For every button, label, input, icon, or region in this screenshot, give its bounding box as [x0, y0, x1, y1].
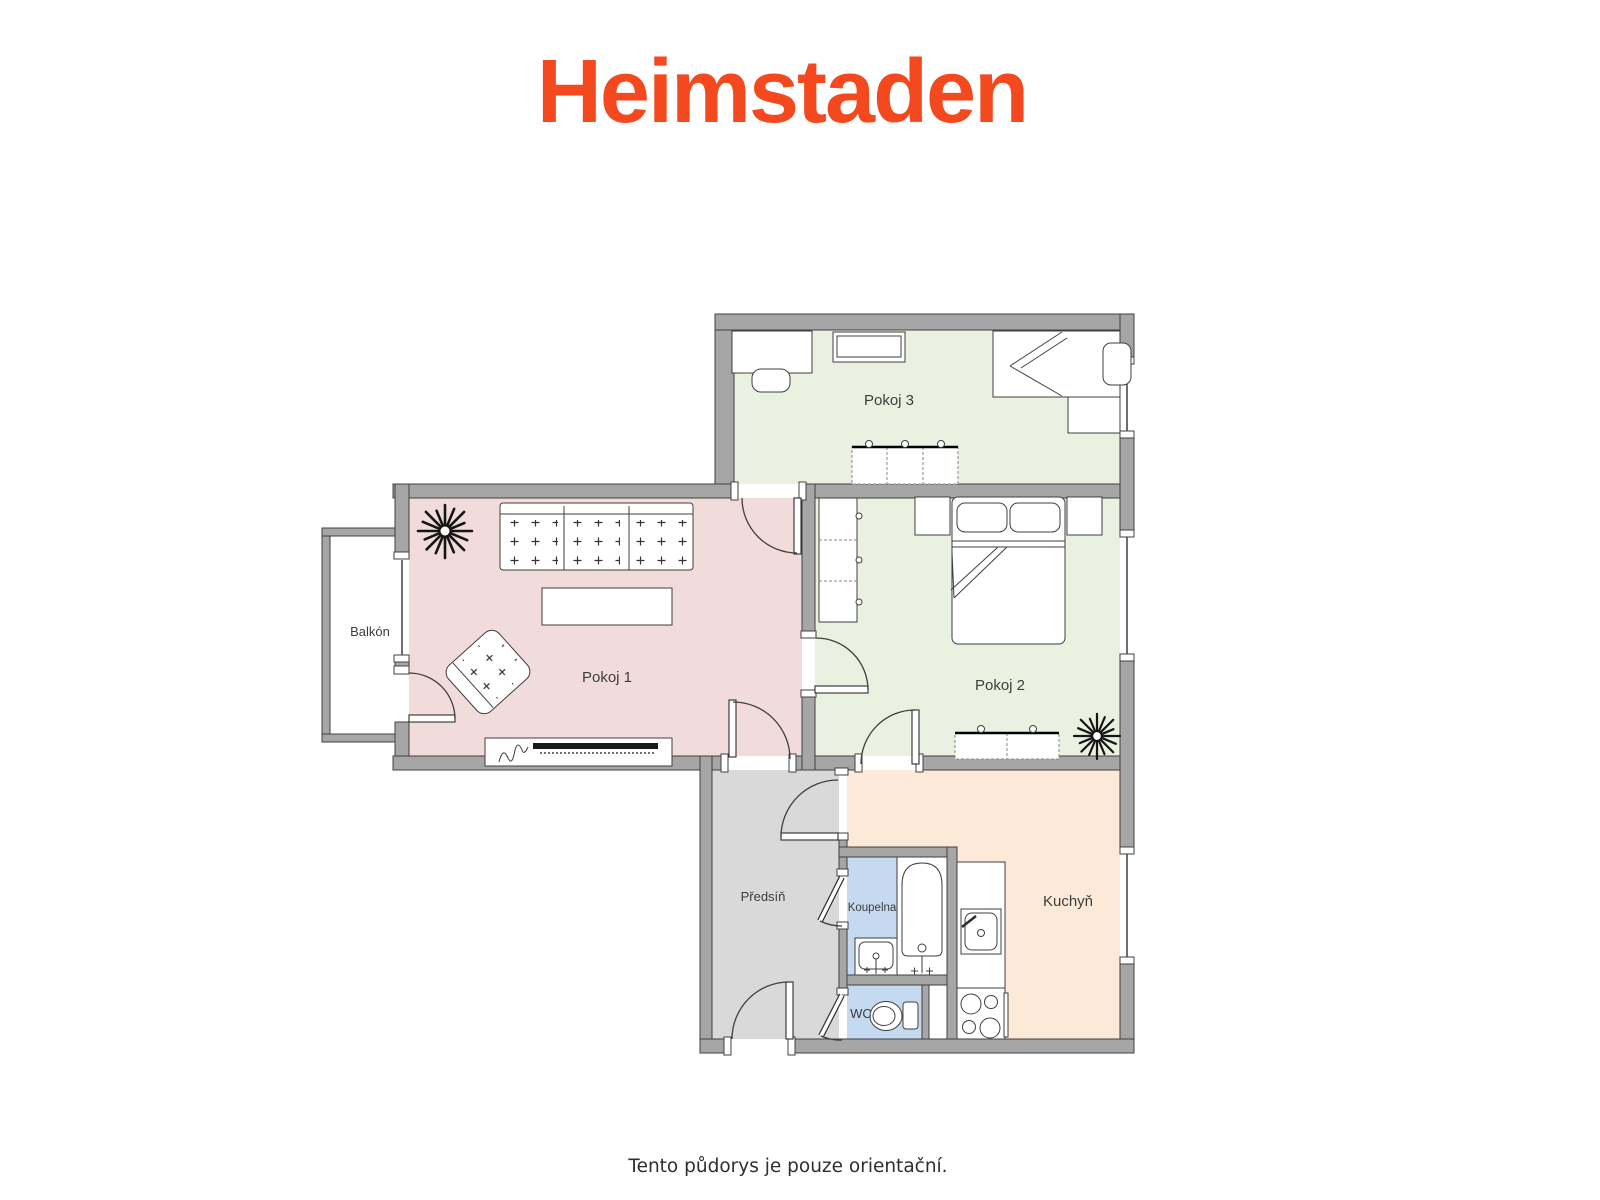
wardrobe-pokoj3 — [852, 441, 958, 485]
label-kuchyn: Kuchyň — [1043, 893, 1093, 910]
bed-pillow — [1103, 343, 1131, 385]
label-koupelna: Koupelna — [848, 902, 897, 914]
desk — [732, 331, 812, 373]
floor-plan: Heimstaden — [0, 0, 1600, 1200]
bathtub — [897, 857, 947, 975]
disclaimer-text: Tento půdorys je pouze orientační. — [627, 1156, 947, 1177]
kitchen-sink — [961, 909, 1001, 954]
plant — [1074, 714, 1120, 759]
label-pokoj1: Pokoj 1 — [582, 669, 632, 686]
room-predsin — [712, 770, 839, 1039]
toilet — [870, 1002, 918, 1031]
single-bed — [993, 331, 1131, 397]
sofa — [500, 503, 693, 570]
bookshelf — [833, 332, 905, 362]
label-wc: WC — [850, 1006, 872, 1021]
desk-chair — [752, 369, 790, 392]
nightstand — [1067, 497, 1102, 535]
nightstand — [915, 497, 950, 535]
floor-plan-page: Heimstaden — [0, 0, 1600, 1200]
double-bed — [951, 497, 1065, 644]
side-table — [1068, 397, 1120, 433]
window-pokoj1 — [394, 552, 409, 662]
label-balkon: Balkón — [350, 624, 390, 639]
label-pokoj2: Pokoj 2 — [975, 677, 1025, 694]
label-pokoj3: Pokoj 3 — [864, 392, 914, 409]
bed-pillow — [957, 503, 1007, 532]
bed-pillow — [1010, 503, 1060, 532]
wardrobe-pokoj2 — [819, 498, 862, 622]
label-predsin: Předsíň — [741, 889, 786, 904]
installation-shaft — [929, 985, 947, 1039]
window-kuchyn — [1120, 847, 1134, 964]
coffee-table — [542, 588, 672, 625]
window-pokoj2 — [1120, 530, 1134, 661]
tv — [533, 743, 658, 749]
brand-logo: Heimstaden — [537, 42, 1027, 142]
stove — [957, 988, 1008, 1039]
furniture-kuchyn — [957, 862, 1008, 1039]
plant — [418, 505, 472, 558]
tv-stand — [485, 738, 672, 766]
bathroom-sink — [855, 938, 897, 975]
